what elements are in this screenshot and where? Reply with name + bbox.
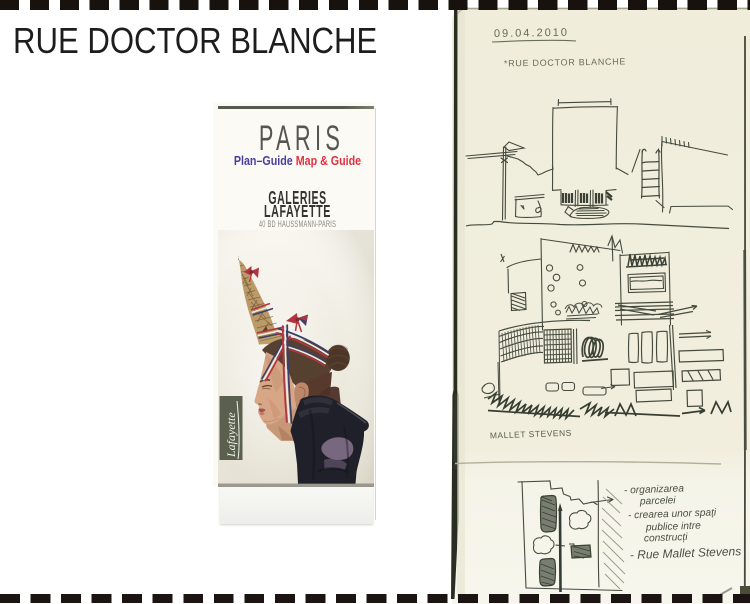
svg-text:09.04.2010: 09.04.2010 — [494, 27, 569, 40]
svg-text:construcți: construcți — [644, 532, 689, 545]
svg-text:Lafayette: Lafayette — [224, 412, 238, 458]
svg-text:parcelei: parcelei — [639, 495, 677, 507]
svg-text:*RUE DOCTOR BLANCHE: *RUE DOCTOR BLANCHE — [504, 56, 626, 68]
